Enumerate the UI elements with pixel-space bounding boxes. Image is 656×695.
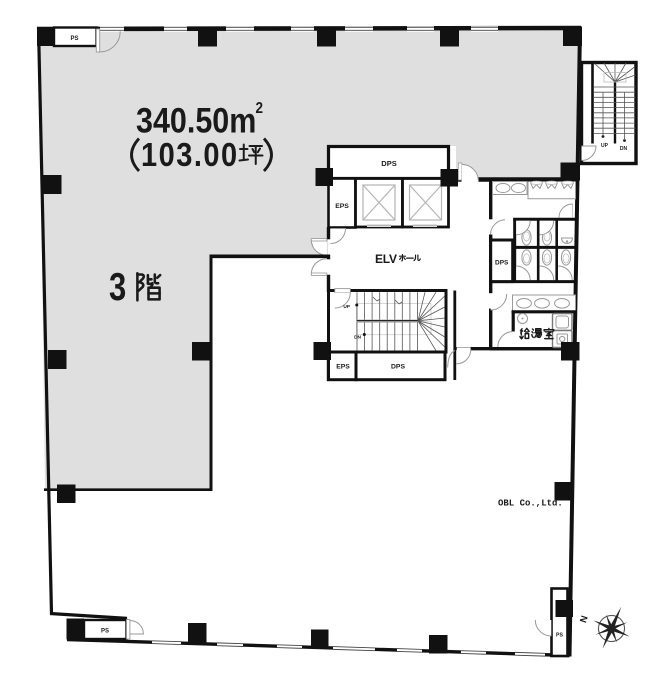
- svg-text:340.50m: 340.50m: [136, 101, 256, 141]
- svg-text:DN: DN: [620, 146, 628, 152]
- svg-text:PS: PS: [70, 36, 78, 42]
- svg-text:UP: UP: [601, 143, 609, 149]
- svg-text:103.00: 103.00: [141, 136, 239, 173]
- svg-text:DPS: DPS: [391, 364, 405, 371]
- svg-text:PS: PS: [101, 629, 109, 635]
- svg-text:PS: PS: [556, 633, 563, 639]
- svg-text:DPS: DPS: [381, 159, 396, 168]
- svg-text:OBL Co.,Ltd.: OBL Co.,Ltd.: [498, 499, 563, 509]
- svg-text:DN: DN: [354, 334, 361, 340]
- svg-text:2: 2: [256, 100, 264, 117]
- svg-text:EPS: EPS: [335, 203, 349, 210]
- svg-text:DPS: DPS: [495, 260, 509, 267]
- svg-text:ELV: ELV: [375, 252, 397, 266]
- svg-text:3: 3: [109, 264, 126, 308]
- svg-text:UP: UP: [343, 304, 350, 310]
- svg-text:EPS: EPS: [336, 364, 350, 371]
